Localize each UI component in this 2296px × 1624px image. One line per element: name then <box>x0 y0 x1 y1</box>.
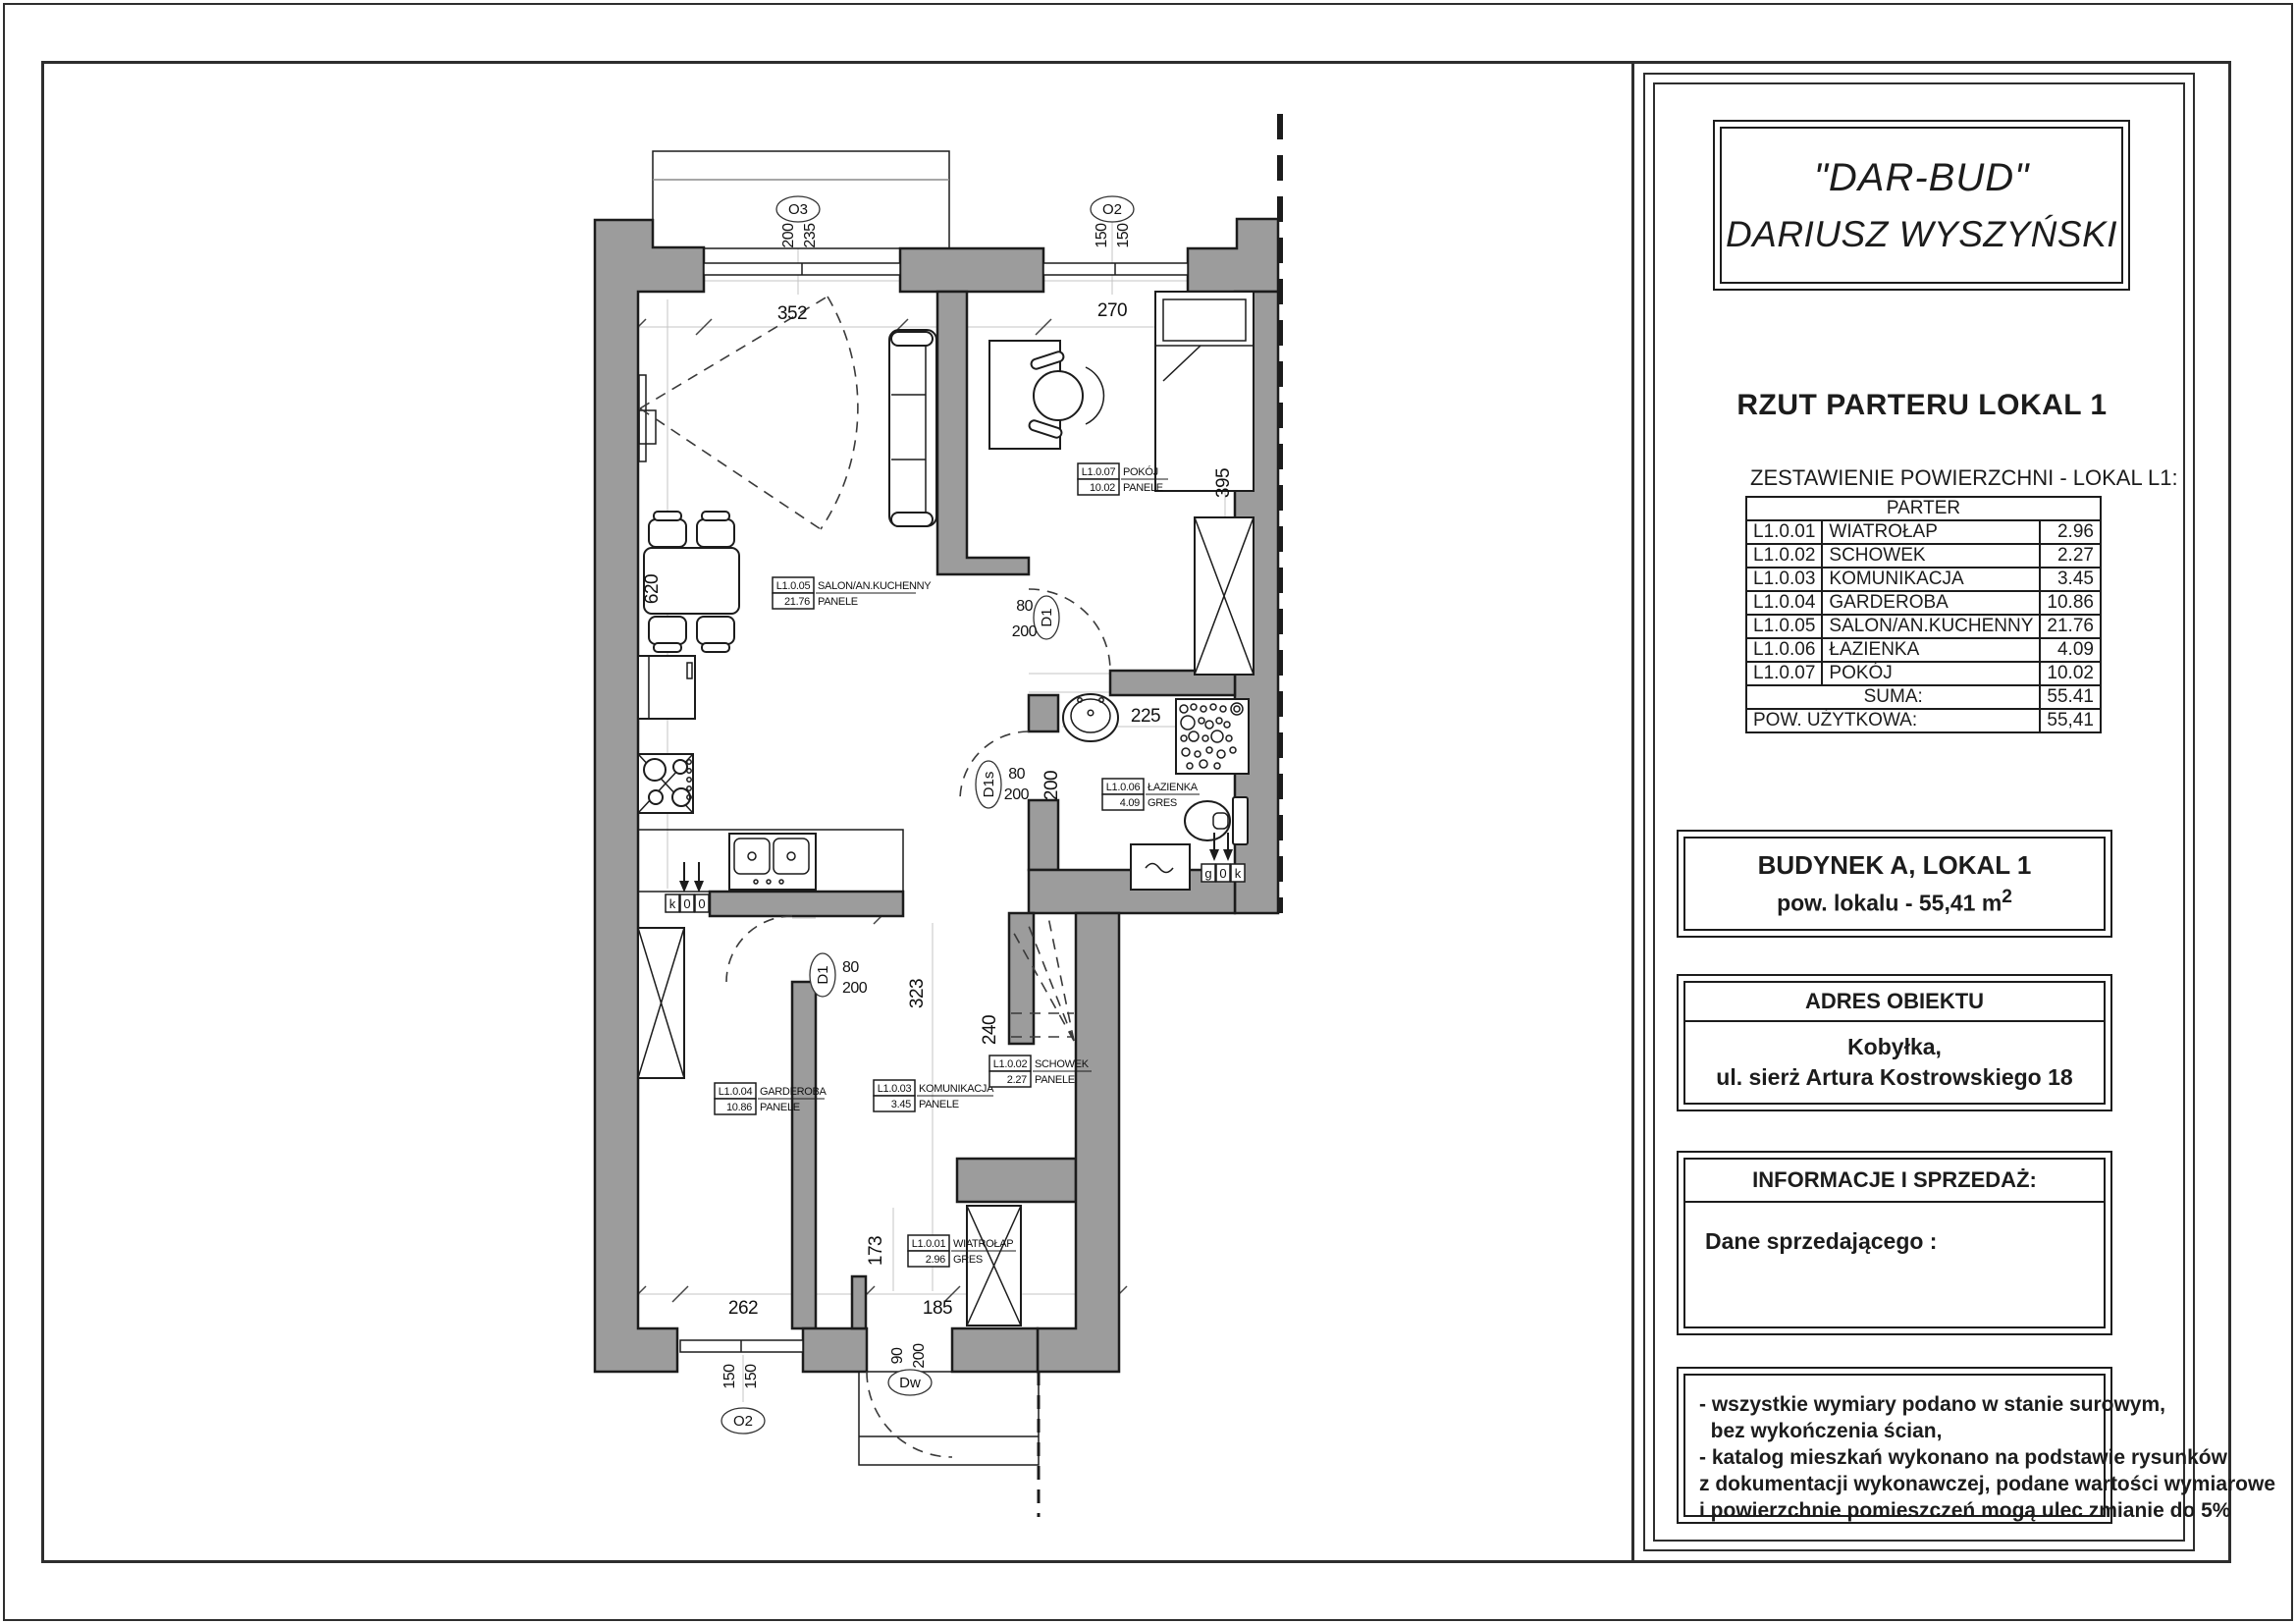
schowek-area: 2.27 <box>1007 1074 1027 1086</box>
pow-row: POW. UŻYTKOWA:55,41 <box>1746 709 2101 732</box>
garderoba-area: 10.86 <box>726 1102 752 1113</box>
dim-o2b-150a: 150 <box>721 1364 738 1389</box>
dim-225: 225 <box>1131 706 1160 727</box>
schowek-code: L1.0.02 <box>993 1058 1028 1070</box>
office-chair-icon <box>1028 351 1103 439</box>
salon-code: L1.0.05 <box>776 580 811 592</box>
building-area-text: pow. lokalu - 55,41 m <box>1777 891 2002 916</box>
wall-top-right-corner <box>1188 219 1278 292</box>
garderoba-code: L1.0.04 <box>719 1086 753 1098</box>
room-code: L1.0.03 <box>1746 568 1822 591</box>
bubble-d1s: D1s <box>981 772 997 798</box>
room-area: 2.27 <box>2040 544 2101 568</box>
room-code: L1.0.04 <box>1746 591 1822 615</box>
address-header: ADRES OBIEKTU <box>1685 983 2104 1022</box>
tv-shelf-icon <box>639 375 656 461</box>
building-box: BUDYNEK A, LOKAL 1 pow. lokalu - 55,41 m… <box>1677 830 2112 938</box>
pokoj-code: L1.0.07 <box>1082 466 1116 478</box>
dim-o3-235: 235 <box>802 223 819 248</box>
komunikacja-area: 3.45 <box>891 1099 911 1110</box>
bubble-o2-bottom: O2 <box>733 1413 753 1430</box>
room-name: ŁAZIENKA <box>1822 638 2040 662</box>
area-table: PARTER L1.0.01WIATROŁAP2.96 L1.0.02SCHOW… <box>1745 496 2102 733</box>
room-area: 4.09 <box>2040 638 2101 662</box>
meter-box-k2: k <box>1235 866 1242 881</box>
room-label-pokoj: L1.0.07 POKÓJ 10.02 PANELE <box>1078 463 1168 495</box>
room-code: L1.0.01 <box>1746 520 1822 544</box>
room-area: 10.02 <box>2040 662 2101 685</box>
table-row: L1.0.05SALON/AN.KUCHENNY21.76 <box>1746 615 2101 638</box>
salon-floor: PANELE <box>818 596 858 608</box>
room-name: KOMUNIKACJA <box>1822 568 2040 591</box>
dim-o2b-150b: 150 <box>743 1364 760 1389</box>
wall-kitchen <box>710 892 903 916</box>
lazienka-floor: GRES <box>1148 797 1177 809</box>
wall-right-lower <box>1038 913 1119 1372</box>
address-box: ADRES OBIEKTU Kobyłka, ul. sierż Artura … <box>1677 974 2112 1111</box>
dim-323: 323 <box>907 979 928 1008</box>
dim-185: 185 <box>923 1298 952 1319</box>
pokoj-name: POKÓJ <box>1123 465 1158 478</box>
kitchen-meter-boxes: k 0 0 <box>666 894 709 912</box>
meter-box-k: k <box>669 896 676 911</box>
lazienka-name: ŁAZIENKA <box>1148 782 1199 793</box>
dim-o2t-150a: 150 <box>1094 223 1110 248</box>
terrace-door-swing <box>640 297 858 529</box>
salon-name: SALON/AN.KUCHENNY <box>818 580 932 592</box>
room-area: 10.86 <box>2040 591 2101 615</box>
wall-lazienka-left-lower <box>1029 800 1058 870</box>
kitchen-counter <box>638 830 903 892</box>
dim-d1p-80: 80 <box>1016 598 1033 615</box>
meter-box-0c: 0 <box>1219 866 1226 881</box>
wiatrolap-floor: GRES <box>953 1254 983 1266</box>
pokoj-floor: PANELE <box>1123 482 1163 494</box>
building-name: BUDYNEK A, LOKAL 1 <box>1758 850 2032 881</box>
wall-bottom-mid-left <box>803 1328 867 1372</box>
lazienka-code: L1.0.06 <box>1106 782 1141 793</box>
dim-o2t-150b: 150 <box>1115 223 1132 248</box>
room-label-komunikacja: L1.0.03 KOMUNIKACJA 3.45 PANELE <box>874 1080 994 1111</box>
room-code: L1.0.07 <box>1746 662 1822 685</box>
table-row: L1.0.04GARDEROBA10.86 <box>1746 591 2101 615</box>
room-name: POKÓJ <box>1822 662 2040 685</box>
room-name: WIATROŁAP <box>1822 520 2040 544</box>
shower-icon <box>1176 699 1249 774</box>
building-area: pow. lokalu - 55,41 m2 <box>1777 887 2012 917</box>
building-area-sup: 2 <box>2002 887 2012 907</box>
kitchen-sink <box>729 834 816 890</box>
room-label-salon: L1.0.05 SALON/AN.KUCHENNY 21.76 PANELE <box>773 577 932 609</box>
garderoba-floor: PANELE <box>760 1102 800 1113</box>
room-code: L1.0.06 <box>1746 638 1822 662</box>
pokoj-area: 10.02 <box>1090 482 1115 494</box>
lazienka-area: 4.09 <box>1120 797 1140 809</box>
bubble-d1-garderoba: D1 <box>815 965 831 984</box>
komunikacja-name: KOMUNIKACJA <box>919 1083 994 1095</box>
bubble-o2-top: O2 <box>1102 201 1122 218</box>
dim-620: 620 <box>642 574 663 604</box>
pow-label: POW. UŻYTKOWA: <box>1746 709 2040 732</box>
room-code: L1.0.02 <box>1746 544 1822 568</box>
fridge-icon <box>638 656 695 719</box>
table-row: L1.0.02SCHOWEK2.27 <box>1746 544 2101 568</box>
wall-lazienka-left-upper <box>1029 695 1058 731</box>
table-row: L1.0.01WIATROŁAP2.96 <box>1746 520 2101 544</box>
washing-machine-icon <box>1131 844 1190 890</box>
note-line: - katalog mieszkań wykonano na podstawie… <box>1699 1444 2104 1471</box>
drawing-sheet: k 0 0 <box>0 0 2296 1624</box>
dim-d1s-200: 200 <box>1004 786 1030 803</box>
door-arc-d1-garderoba <box>726 916 792 982</box>
room-name: SCHOWEK <box>1822 544 2040 568</box>
wardrobe-wiatrolap <box>967 1206 1021 1326</box>
wall-wiatrolap-stub <box>852 1276 866 1328</box>
note-line: z dokumentacji wykonawczej, podane warto… <box>1699 1471 2104 1497</box>
dim-dw-200: 200 <box>911 1343 928 1369</box>
table-row: L1.0.07POKÓJ10.02 <box>1746 662 2101 685</box>
dim-352: 352 <box>777 303 807 324</box>
dim-395: 395 <box>1213 468 1234 498</box>
pow-value: 55,41 <box>2040 709 2101 732</box>
salon-area: 21.76 <box>784 596 810 608</box>
company-owner: DARIUSZ WYSZYŃSKI <box>1726 214 2117 255</box>
kitchen-vent-arrows <box>679 862 704 893</box>
wardrobe-pokoj <box>1195 517 1254 675</box>
dim-173: 173 <box>866 1236 886 1266</box>
dim-d1s-80: 80 <box>1008 766 1025 783</box>
wall-schowek-left <box>1009 913 1034 1044</box>
address-street: ul. sierż Artura Kostrowskiego 18 <box>1716 1064 2072 1091</box>
table-row: L1.0.06ŁAZIENKA4.09 <box>1746 638 2101 662</box>
room-name: SALON/AN.KUCHENNY <box>1822 615 2040 638</box>
company-logo-box: "DAR-BUD" DARIUSZ WYSZYŃSKI <box>1713 120 2130 291</box>
dim-200-lazienka: 200 <box>1041 771 1062 800</box>
dim-o3-200: 200 <box>780 223 797 248</box>
bed-icon <box>1155 292 1254 491</box>
area-table-caption: ZESTAWIENIE POWIERZCHNI - LOKAL L1: <box>1750 465 2178 491</box>
meter-box-0b: 0 <box>698 896 705 911</box>
entry-porch <box>859 1372 1039 1517</box>
note-line: i powierzchnie pomieszczeń mogą ulec zmi… <box>1699 1497 2104 1524</box>
room-name: GARDEROBA <box>1822 591 2040 615</box>
komunikacja-floor: PANELE <box>919 1099 959 1110</box>
room-label-lazienka: L1.0.06 ŁAZIENKA 4.09 GRES <box>1102 779 1200 810</box>
address-city: Kobyłka, <box>1847 1034 1942 1060</box>
wall-garderoba-komunikacja <box>792 982 816 1328</box>
table-header: PARTER <box>1746 497 2101 520</box>
sofa-icon <box>889 330 936 526</box>
seller-data-label: Dane sprzedającego : <box>1685 1203 2104 1255</box>
meter-box-0a: 0 <box>683 896 690 911</box>
bubble-d1-pokoj: D1 <box>1039 608 1055 626</box>
info-header: INFORMACJE I SPRZEDAŻ: <box>1685 1160 2104 1203</box>
room-code: L1.0.05 <box>1746 615 1822 638</box>
bathroom-sink-icon <box>1063 694 1118 741</box>
toilet-icon <box>1185 797 1248 844</box>
suma-row: SUMA:55.41 <box>1746 685 2101 709</box>
komunikacja-code: L1.0.03 <box>878 1083 912 1095</box>
note-line: - wszystkie wymiary podano w stanie suro… <box>1699 1391 2104 1418</box>
stove-icon <box>638 754 693 813</box>
info-box: INFORMACJE I SPRZEDAŻ: Dane sprzedająceg… <box>1677 1151 2112 1335</box>
bubble-o3: O3 <box>788 201 808 218</box>
wall-schowek-wiatrolap <box>957 1159 1076 1202</box>
wiatrolap-area: 2.96 <box>926 1254 945 1266</box>
bubble-dw: Dw <box>899 1375 921 1391</box>
drawing-title: RZUT PARTERU LOKAL 1 <box>1655 389 2189 422</box>
schowek-floor: PANELE <box>1035 1074 1075 1086</box>
wall-top-mid <box>900 248 1043 292</box>
room-area: 3.45 <box>2040 568 2101 591</box>
suma-label: SUMA: <box>1746 685 2040 709</box>
notes-box: - wszystkie wymiary podano w stanie suro… <box>1677 1367 2112 1524</box>
meter-box-g: g <box>1204 866 1211 881</box>
garderoba-name: GARDEROBA <box>760 1086 828 1098</box>
wardrobe-garderoba <box>638 928 684 1078</box>
note-line: bez wykończenia ścian, <box>1699 1418 2104 1444</box>
dim-dw-90: 90 <box>889 1347 906 1364</box>
dim-d1g-200: 200 <box>842 980 868 997</box>
dim-262: 262 <box>728 1298 758 1319</box>
dim-d1g-80: 80 <box>842 959 859 976</box>
dim-240: 240 <box>980 1015 1000 1045</box>
schowek-name: SCHOWEK <box>1035 1058 1090 1070</box>
room-area: 21.76 <box>2040 615 2101 638</box>
room-area: 2.96 <box>2040 520 2101 544</box>
suma-value: 55.41 <box>2040 685 2101 709</box>
wiatrolap-code: L1.0.01 <box>912 1238 946 1250</box>
table-row: L1.0.03KOMUNIKACJA3.45 <box>1746 568 2101 591</box>
dim-d1p-200: 200 <box>1012 623 1038 640</box>
company-name: "DAR-BUD" <box>1814 156 2030 200</box>
dim-270: 270 <box>1097 300 1127 321</box>
wall-bottom-mid-right <box>952 1328 1038 1372</box>
wiatrolap-name: WIATROŁAP <box>953 1238 1013 1250</box>
